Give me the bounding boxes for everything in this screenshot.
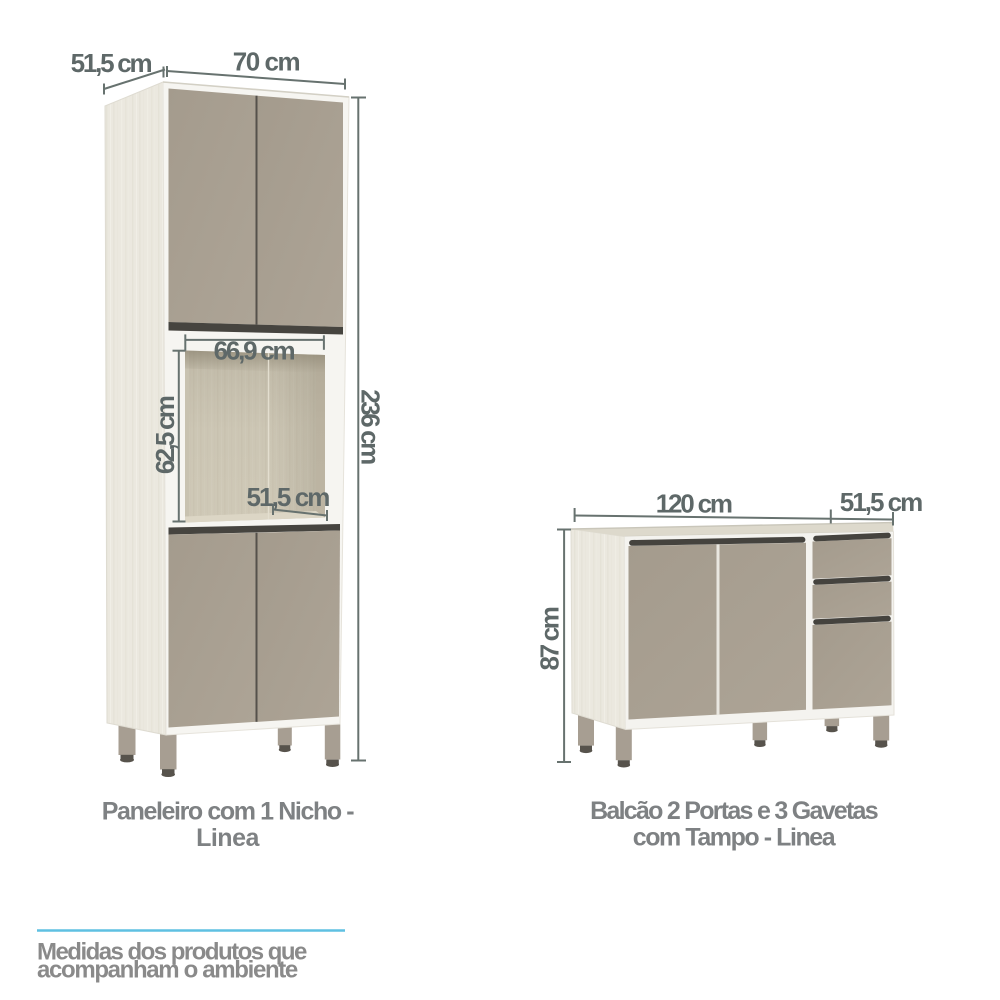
svg-text:com Tampo - Linea: com Tampo - Linea (633, 824, 837, 852)
svg-text:87 cm: 87 cm (535, 607, 565, 670)
svg-text:62,5 cm: 62,5 cm (150, 396, 180, 474)
svg-text:Balcão 2 Portas e 3 Gavetas: Balcão 2 Portas e 3 Gavetas (590, 797, 878, 825)
svg-text:51,5 cm: 51,5 cm (71, 48, 152, 78)
svg-text:66,9 cm: 66,9 cm (214, 336, 295, 366)
svg-text:236 cm: 236 cm (356, 389, 386, 464)
svg-text:Paneleiro com 1 Nicho -: Paneleiro com 1 Nicho - (102, 798, 355, 826)
svg-text:Linea: Linea (196, 824, 260, 852)
svg-text:51,5 cm: 51,5 cm (247, 482, 330, 512)
svg-text:51,5 cm: 51,5 cm (840, 487, 922, 517)
svg-text:acompanham o ambiente: acompanham o ambiente (37, 957, 298, 984)
svg-text:120 cm: 120 cm (656, 489, 732, 519)
svg-text:70 cm: 70 cm (233, 47, 300, 77)
